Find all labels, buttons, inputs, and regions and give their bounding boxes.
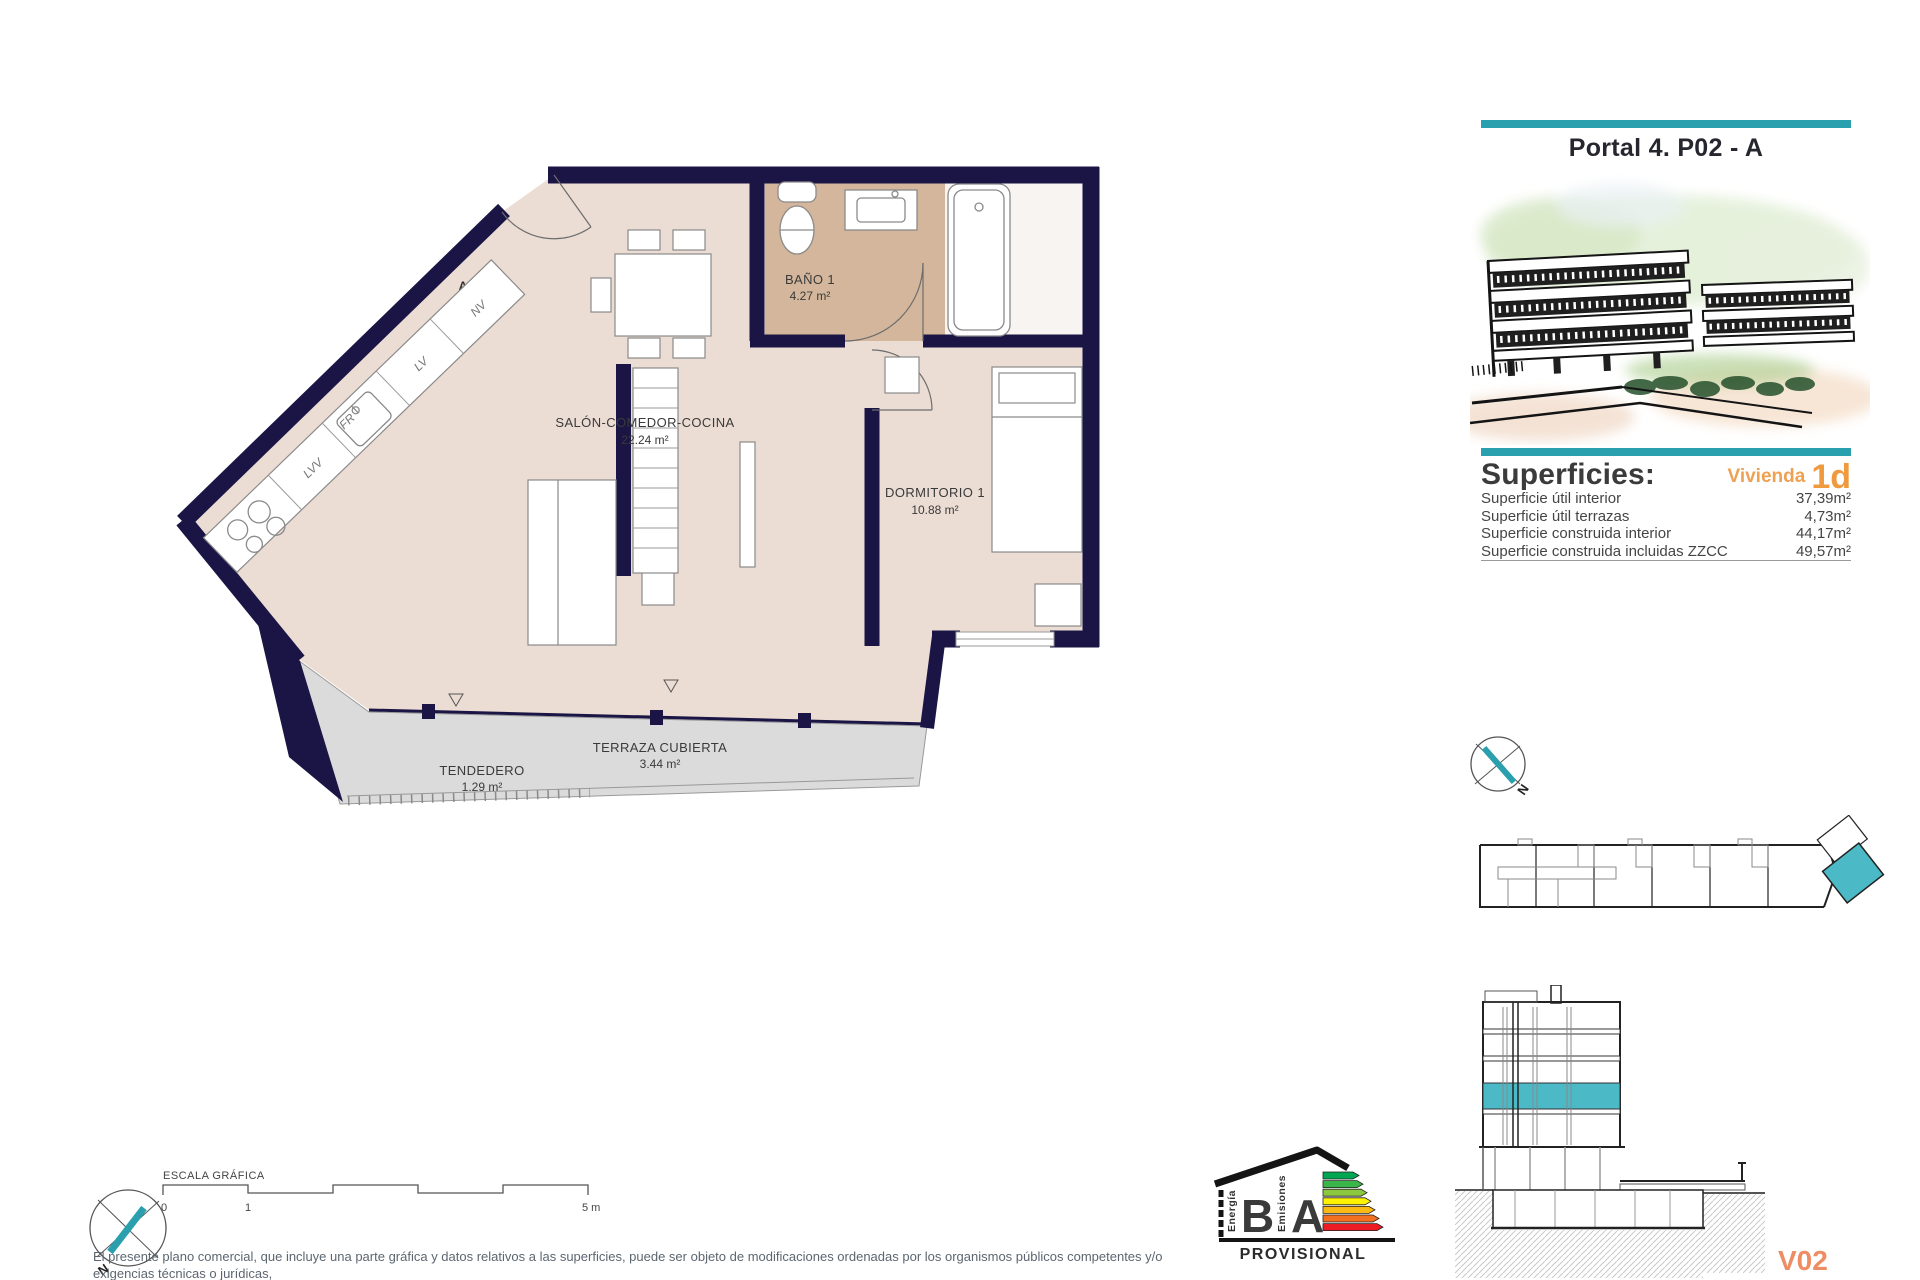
basement — [1493, 1190, 1703, 1228]
terrace-area: 3.44 m² — [640, 757, 681, 771]
energia-label: Energía — [1226, 1190, 1238, 1232]
bathroom-area: 4.27 m² — [790, 289, 831, 303]
row-value: 4,73m² — [1804, 508, 1851, 526]
row-value: 44,17m² — [1796, 525, 1851, 543]
bedroom-label: DORMITORIO 1 — [885, 485, 985, 500]
bedroom-area: 10.88 m² — [911, 503, 958, 517]
superficies-table: Superficie útil interior 37,39m² Superfi… — [1481, 490, 1851, 560]
chair — [673, 230, 705, 250]
north-label: N — [1514, 781, 1532, 797]
building-illustration — [1470, 165, 1870, 445]
superficies-heading: Superficies: — [1481, 458, 1728, 492]
vivienda-code: 1d — [1811, 462, 1851, 492]
tendedero-area: 1.29 m² — [462, 780, 503, 794]
living-room-label: SALÓN-COMEDOR-COCINA — [555, 415, 734, 430]
bathroom-label: BAÑO 1 — [785, 272, 835, 287]
table-underline — [1481, 560, 1851, 561]
ground-hatch — [1493, 1230, 1703, 1278]
plan-sheet: A LVV FR LV NV — [0, 0, 1920, 1280]
energia-rating: B — [1241, 1190, 1274, 1242]
emisiones-label: Emisiones — [1276, 1175, 1288, 1232]
highlighted-floor — [1483, 1083, 1620, 1109]
chair — [628, 338, 660, 358]
tower-outline — [1483, 1002, 1620, 1147]
emisiones-rating: A — [1291, 1190, 1324, 1242]
page-title: Portal 4. P02 - A — [1481, 134, 1851, 163]
sofa — [528, 480, 616, 645]
nightstand — [1035, 584, 1081, 626]
superficies-header: Superficies: Vivienda 1d — [1481, 458, 1851, 492]
terrace-label: TERRAZA CUBIERTA — [593, 740, 728, 755]
scale-bar: ESCALA GRÁFICA 0 1 5 m — [150, 1165, 620, 1225]
row-label: Superficie útil interior — [1481, 490, 1796, 508]
scale-bar-label: ESCALA GRÁFICA — [163, 1169, 265, 1182]
right-building-block — [1702, 280, 1854, 346]
bedroom-window — [956, 632, 1054, 646]
table-row: Superficie construida incluidas ZZCC 49,… — [1481, 543, 1851, 561]
wardrobe — [633, 368, 678, 573]
chair — [673, 338, 705, 358]
ground-hatch — [1455, 1190, 1493, 1278]
toilet-cistern — [778, 182, 816, 202]
compass-needle — [1484, 748, 1514, 782]
row-label: Superficie construida incluidas ZZCC — [1481, 543, 1796, 561]
table-row: Superficie útil terrazas 4,73m² — [1481, 508, 1851, 526]
building-section — [1455, 985, 1915, 1280]
nightstand — [885, 357, 919, 393]
version-label: V02 — [1778, 1245, 1828, 1277]
row-value: 49,57m² — [1796, 543, 1851, 561]
energy-certificate-icon: Energía B Emisiones A — [1205, 1128, 1415, 1258]
scale-tick-5: 5 m — [582, 1202, 600, 1214]
scale-tick-0: 0 — [161, 1202, 167, 1214]
provisional-label: PROVISIONAL — [1238, 1246, 1368, 1264]
row-value: 37,39m² — [1796, 490, 1851, 508]
energy-scale-arrows — [1323, 1172, 1383, 1231]
living-room-area: 22.24 m² — [621, 433, 668, 447]
table-row: Superficie construida interior 44,17m² — [1481, 525, 1851, 543]
chair — [591, 278, 611, 312]
tv-unit — [740, 442, 755, 567]
tendedero-label: TENDEDERO — [439, 763, 524, 778]
ground-hatch — [1703, 1193, 1765, 1273]
header-accent-bar — [1481, 120, 1851, 128]
disclaimer-text: El presente plano comercial, que incluye… — [93, 1248, 1203, 1280]
compass-icon: N — [1462, 732, 1572, 822]
key-plan — [1478, 815, 1918, 935]
vivienda-label: Vivienda — [1728, 462, 1806, 492]
compass-needle — [110, 1208, 144, 1252]
row-label: Superficie útil terrazas — [1481, 508, 1804, 526]
railing — [1738, 1163, 1746, 1181]
table-row: Superficie útil interior 37,39m² — [1481, 490, 1851, 508]
hall-partition-wall — [616, 364, 631, 576]
superficies-accent-bar — [1481, 448, 1851, 456]
row-label: Superficie construida interior — [1481, 525, 1796, 543]
chair — [628, 230, 660, 250]
dining-table — [615, 254, 711, 336]
disclaimer-line-1: El presente plano comercial, que incluye… — [93, 1248, 1203, 1280]
pillow — [999, 373, 1075, 403]
floor-plan: A LVV FR LV NV — [150, 112, 1150, 872]
scale-tick-1: 1 — [245, 1202, 251, 1214]
